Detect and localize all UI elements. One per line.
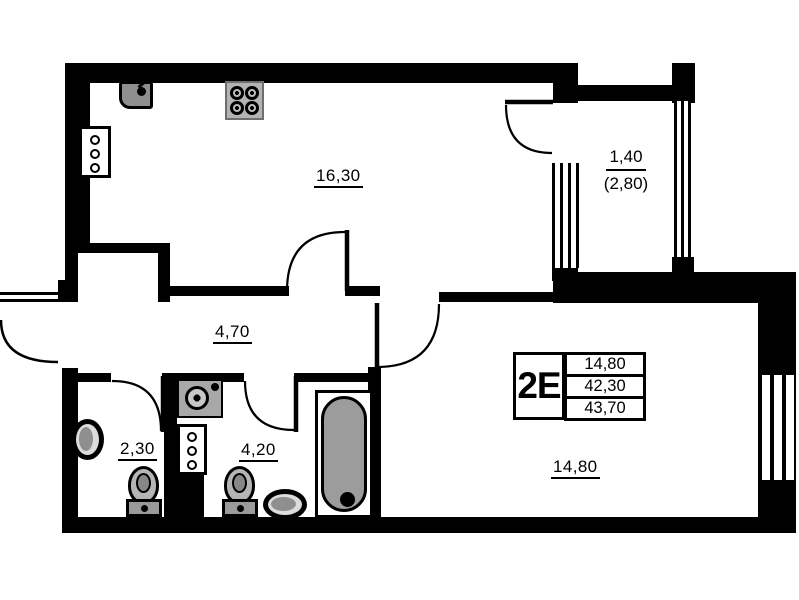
- legend-total-area: 43,70: [564, 396, 646, 421]
- apartment-type-label: 2E: [513, 352, 565, 420]
- apartment-legend: 2E 14,80 42,30 43,70: [513, 352, 646, 421]
- floor-plan: 16,30 4,70 2,30 4,20 14,80 1,40 (2,80) 2…: [0, 0, 799, 600]
- balcony-area-label: 1,40: [606, 147, 645, 171]
- balcony-door: [505, 102, 553, 153]
- legend-values: 14,80 42,30 43,70: [564, 352, 646, 421]
- hallway-area-label: 4,70: [213, 323, 252, 344]
- living-room-area-label: 14,80: [551, 458, 600, 479]
- balcony-labels: 1,40 (2,80): [578, 147, 674, 194]
- small-bath-door: [112, 376, 163, 432]
- small-bath-area-label: 2,30: [118, 440, 157, 461]
- living-room-door: [377, 303, 439, 367]
- bath-door: [245, 376, 296, 432]
- bath-area-label: 4,20: [239, 441, 278, 462]
- entrance-door: [1, 320, 58, 362]
- kitchen-area-label: 16,30: [314, 167, 363, 188]
- door-arcs-layer: [0, 0, 799, 600]
- balcony-total-area-label: (2,80): [578, 174, 674, 194]
- kitchen-door: [287, 230, 347, 291]
